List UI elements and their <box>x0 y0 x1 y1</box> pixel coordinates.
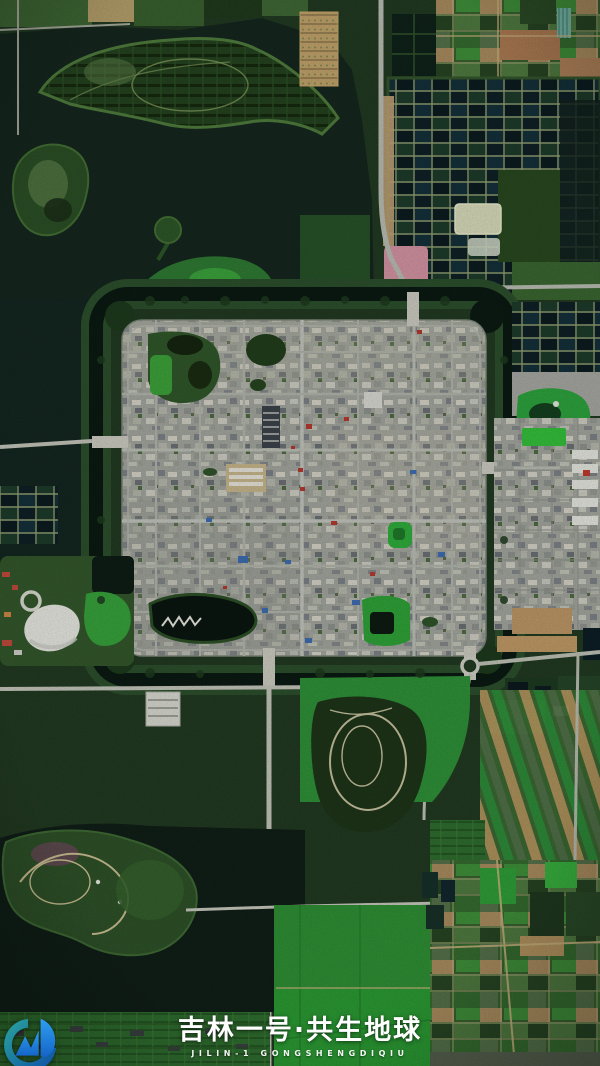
satellite-image: 吉林一号·共生地球 JILIN-1 GONGSHENGDIQIU <box>0 0 600 1066</box>
satellite-scene <box>0 0 600 1066</box>
vignette <box>0 0 600 1066</box>
